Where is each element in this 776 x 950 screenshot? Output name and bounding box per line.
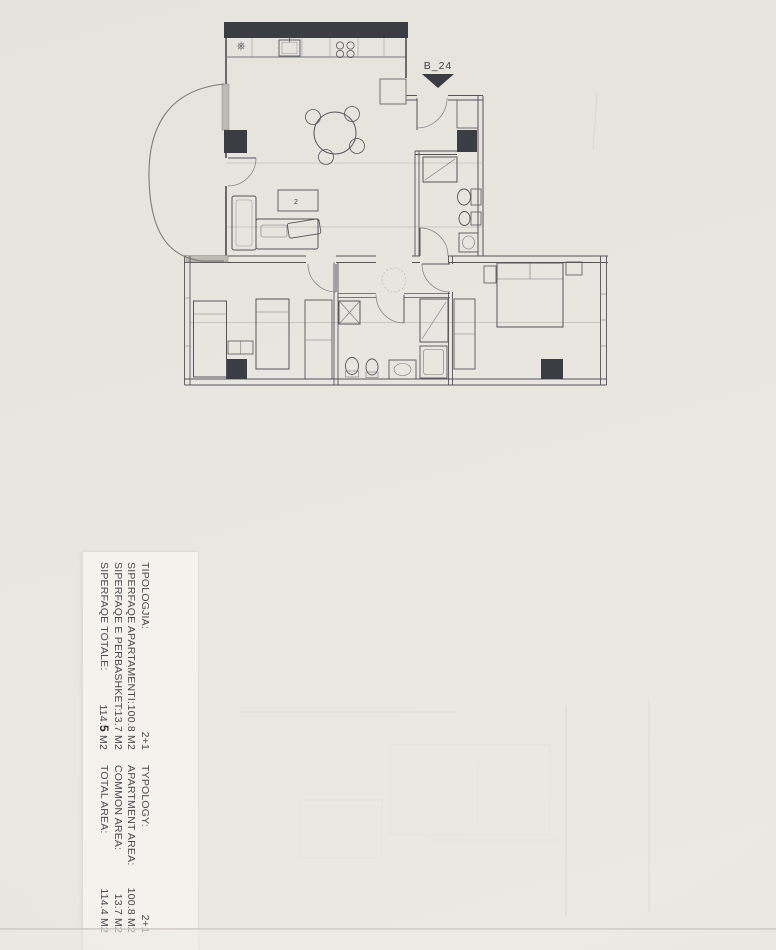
en-label-common-area: COMMON AREA: <box>111 765 125 873</box>
en-label-apartment-area: APARTMENT AREA: <box>124 765 138 873</box>
construction-lines <box>190 163 600 323</box>
entry-hall: B_24 <box>380 60 478 128</box>
en-label-typology: TYPOLOGY: <box>138 765 152 873</box>
sq-label-apartment-area: SIPERFAQE APARTAMENTI: <box>124 562 138 695</box>
en-value-common-area: 13.7 M2 <box>111 873 125 933</box>
bathroom-second <box>339 299 448 379</box>
en-value-total-area: 114.4 M2 <box>96 873 111 933</box>
paper-edge-strip <box>0 930 776 950</box>
stove-icon <box>336 42 354 58</box>
bleed-through <box>240 92 649 915</box>
rotated-area-table: TIPOLOGJIA: 2+1 TYPOLOGY: 2+1 SIPERFAQE … <box>83 552 198 950</box>
scanned-floorplan-page: 2 B_24 <box>0 0 776 950</box>
unit-label: B_24 <box>424 60 453 72</box>
en-value-apartment-area: 100.8 M2 <box>124 873 138 933</box>
sq-value-apartment-area: 100.8 M2 <box>124 695 138 750</box>
corrected-digit: 5 <box>98 725 112 732</box>
area-summary-strip: TIPOLOGJIA: 2+1 TYPOLOGY: 2+1 SIPERFAQE … <box>83 552 198 950</box>
sq-value-total-area: 114.5 M2 <box>96 695 111 750</box>
entry-arrow-icon <box>422 74 454 88</box>
doors <box>228 98 450 323</box>
sq-label-common-area: SIPERFAQE E PERBASHKET: <box>111 562 125 695</box>
walls <box>184 22 608 385</box>
en-value-typology: 2+1 <box>138 873 152 933</box>
vent-symbol-icon <box>237 42 246 51</box>
table-number-label: 2 <box>294 199 298 206</box>
bedroom-right <box>454 262 582 369</box>
kitchen <box>227 35 406 58</box>
en-label-total-area: TOTAL AREA: <box>96 765 111 873</box>
columns <box>224 130 563 379</box>
living-room: 2 <box>232 107 365 251</box>
sq-label-typology: TIPOLOGJIA: <box>138 562 152 695</box>
sq-label-total-area: SIPERFAQE TOTALE: <box>96 562 111 695</box>
sq-value-common-area: 13.7 M2 <box>111 695 125 750</box>
balcony <box>149 84 224 261</box>
bathroom-main <box>423 157 481 252</box>
sq-value-typology: 2+1 <box>138 695 152 750</box>
bedroom-left <box>194 299 333 379</box>
dining-table <box>306 107 365 165</box>
